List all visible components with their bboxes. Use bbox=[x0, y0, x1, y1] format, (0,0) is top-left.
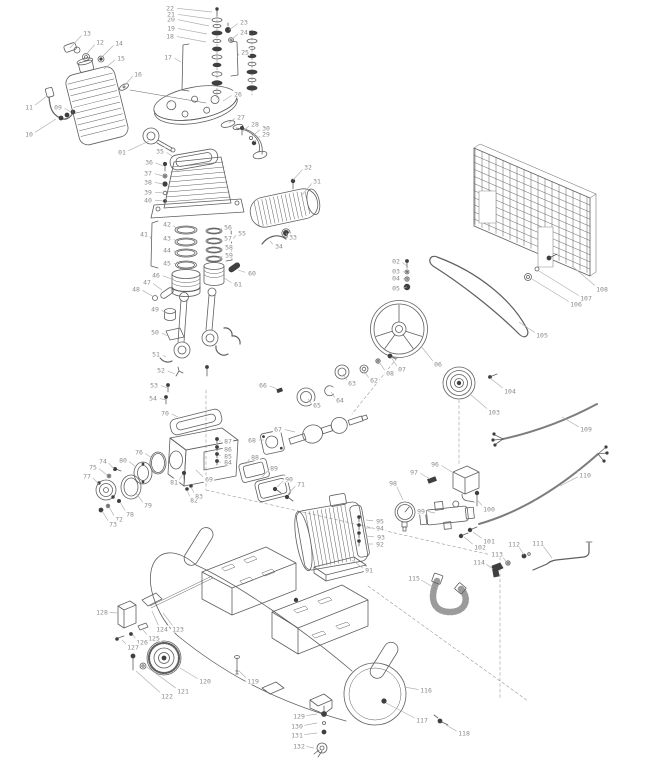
leader-line bbox=[93, 478, 99, 484]
part-number-label: 11 bbox=[25, 103, 33, 111]
leader-line bbox=[153, 284, 162, 290]
part-number-label: 81 bbox=[170, 478, 178, 486]
part-number-label: 93 bbox=[377, 533, 385, 541]
leader-line bbox=[441, 465, 452, 472]
leader-line bbox=[120, 502, 126, 511]
leader-line bbox=[178, 14, 211, 19]
part-number-label: 54 bbox=[149, 394, 157, 402]
part-number-label: 01 bbox=[118, 148, 126, 156]
part-number-label: 99 bbox=[417, 507, 425, 515]
part-number-label: 17 bbox=[164, 53, 172, 61]
part-number-label: 48 bbox=[132, 285, 140, 293]
part-number-label: 83 bbox=[195, 492, 203, 500]
part-number-label: 118 bbox=[458, 729, 470, 737]
part-number-label: 60 bbox=[248, 269, 256, 277]
leader-line bbox=[293, 169, 303, 180]
leader-line bbox=[155, 174, 163, 176]
part-number-label: 66 bbox=[259, 381, 267, 389]
part-number-label: 121 bbox=[177, 687, 189, 695]
part-number-label: 35 bbox=[156, 147, 164, 155]
leader-line bbox=[35, 119, 56, 132]
leader-line bbox=[136, 493, 143, 503]
leader-line bbox=[196, 470, 203, 477]
leader-line bbox=[270, 241, 273, 244]
leader-line bbox=[160, 399, 166, 400]
leader-line bbox=[366, 536, 374, 537]
leader-line bbox=[219, 455, 221, 456]
part-number-label: 97 bbox=[410, 468, 418, 476]
leader-line bbox=[379, 362, 385, 371]
part-number-label: 57 bbox=[224, 234, 232, 242]
part-number-label: 07 bbox=[398, 365, 406, 373]
leader-line bbox=[251, 130, 260, 137]
part-number-label: 70 bbox=[161, 409, 169, 417]
part-number-label: 41 bbox=[140, 230, 148, 238]
tank-handle-front bbox=[182, 525, 216, 568]
part-number-label: 102 bbox=[474, 543, 486, 551]
leader-line bbox=[85, 44, 95, 56]
part-number-label: 64 bbox=[336, 396, 344, 404]
base-gasket-drawing bbox=[169, 408, 223, 436]
part-number-label: 67 bbox=[274, 425, 282, 433]
part-number-label: 58 bbox=[225, 243, 233, 251]
part-number-label: 120 bbox=[199, 677, 211, 685]
part-number-label: 31 bbox=[313, 177, 321, 185]
part-number-label: 19 bbox=[167, 24, 175, 32]
leader-line bbox=[539, 271, 580, 296]
leader-line bbox=[420, 579, 433, 587]
leader-line bbox=[136, 671, 162, 694]
leader-line bbox=[366, 520, 373, 521]
part-number-label: 85 bbox=[224, 452, 232, 460]
callout-leader-lines bbox=[35, 8, 596, 748]
leader-line bbox=[99, 469, 107, 475]
part-number-label: 115 bbox=[408, 574, 420, 582]
leader-line bbox=[175, 58, 181, 62]
part-number-label: 123 bbox=[172, 625, 184, 633]
leader-line bbox=[155, 192, 163, 193]
part-number-label: 76 bbox=[135, 448, 143, 456]
part-number-label: 62 bbox=[370, 376, 378, 384]
leader-line bbox=[446, 725, 458, 732]
part-number-label: 75 bbox=[89, 463, 97, 471]
leader-line bbox=[490, 378, 504, 389]
part-number-label: 49 bbox=[151, 305, 159, 313]
leader-line bbox=[572, 266, 596, 287]
leader-line bbox=[304, 723, 317, 725]
part-number-label: 114 bbox=[473, 558, 485, 566]
part-number-label: 09 bbox=[54, 103, 62, 111]
part-number-label: 107 bbox=[580, 294, 592, 302]
part-number-label: 122 bbox=[161, 692, 173, 700]
part-number-label: 25 bbox=[241, 48, 249, 56]
leader-line bbox=[404, 687, 419, 690]
leader-line bbox=[145, 453, 152, 458]
part-number-label: 69 bbox=[205, 475, 213, 483]
leader-line bbox=[470, 394, 488, 410]
part-number-label: 02 bbox=[392, 257, 400, 265]
power-wires-drawing bbox=[479, 404, 608, 524]
part-number-label: 50 bbox=[151, 328, 159, 336]
part-number-label: 95 bbox=[376, 517, 384, 525]
leader-line bbox=[562, 417, 580, 427]
part-number-label: 116 bbox=[420, 686, 432, 694]
shroud-drawing bbox=[248, 179, 323, 244]
part-number-label: 110 bbox=[579, 471, 591, 479]
part-number-label: 46 bbox=[152, 271, 160, 279]
part-number-label: 65 bbox=[313, 401, 321, 409]
part-number-label: 05 bbox=[392, 284, 400, 292]
part-number-label: 111 bbox=[532, 539, 544, 547]
leader-line bbox=[155, 182, 163, 184]
part-number-label: 30 bbox=[262, 124, 270, 132]
part-number-label: 105 bbox=[536, 331, 548, 339]
tank-drawing bbox=[116, 525, 448, 757]
leader-line bbox=[150, 236, 151, 239]
part-number-label: 103 bbox=[488, 408, 500, 416]
part-number-label: 10 bbox=[25, 130, 33, 138]
part-number-label: 90 bbox=[285, 475, 293, 483]
part-number-label: 42 bbox=[163, 220, 171, 228]
part-number-label: 44 bbox=[163, 246, 171, 254]
part-number-label: 132 bbox=[293, 742, 305, 750]
leader-line bbox=[224, 278, 232, 283]
part-number-label: 127 bbox=[127, 643, 139, 651]
tank-handle-rear bbox=[368, 640, 401, 681]
part-number-label: 39 bbox=[144, 188, 152, 196]
part-number-label: 77 bbox=[83, 472, 91, 480]
leader-line bbox=[543, 546, 552, 558]
leader-line bbox=[129, 462, 136, 467]
leader-line bbox=[65, 108, 71, 112]
leader-line bbox=[102, 511, 108, 521]
leader-line bbox=[162, 310, 166, 313]
leader-line bbox=[179, 474, 183, 480]
leader-line bbox=[163, 355, 166, 357]
part-number-label: 16 bbox=[134, 70, 142, 78]
leader-line bbox=[109, 507, 115, 516]
leader-line bbox=[233, 235, 236, 239]
part-number-label: 15 bbox=[117, 54, 125, 62]
part-number-label: 55 bbox=[238, 229, 246, 237]
part-number-label: 104 bbox=[504, 387, 516, 395]
leader-line bbox=[331, 392, 335, 398]
part-number-label: 78 bbox=[126, 510, 134, 518]
part-number-label: 37 bbox=[144, 169, 152, 177]
leader-line bbox=[428, 511, 435, 513]
part-number-label: 56 bbox=[224, 223, 232, 231]
part-number-label: 125 bbox=[148, 634, 160, 642]
part-number-label: 27 bbox=[237, 113, 245, 121]
part-number-label: 91 bbox=[365, 566, 373, 574]
part-number-label: 47 bbox=[143, 278, 151, 286]
part-number-label: 22 bbox=[166, 4, 174, 12]
leader-line bbox=[402, 262, 407, 266]
pressure-controls-drawing bbox=[395, 466, 479, 538]
leader-line bbox=[178, 29, 207, 34]
part-number-label: 88 bbox=[251, 453, 259, 461]
part-number-label: 124 bbox=[156, 625, 168, 633]
part-number-label: 129 bbox=[293, 712, 305, 720]
leader-line bbox=[101, 45, 114, 58]
part-number-label: 131 bbox=[291, 731, 303, 739]
parts-diagram-canvas: 0102030405060708091011121314151617181920… bbox=[0, 0, 646, 768]
part-number-label: 79 bbox=[144, 501, 152, 509]
part-number-label: 96 bbox=[431, 460, 439, 468]
part-number-label: 63 bbox=[348, 379, 356, 387]
part-number-label: 98 bbox=[389, 479, 397, 487]
part-number-label: 100 bbox=[483, 505, 495, 513]
leader-line bbox=[155, 200, 163, 201]
leader-line bbox=[473, 532, 483, 539]
leader-line bbox=[152, 611, 159, 626]
leader-line bbox=[238, 270, 245, 272]
aftercooler-drawing bbox=[61, 42, 206, 147]
leader-line bbox=[229, 24, 238, 30]
leader-line bbox=[166, 152, 172, 156]
leader-line bbox=[128, 141, 149, 151]
part-number-label: 32 bbox=[304, 163, 312, 171]
part-number-label: 38 bbox=[144, 178, 152, 186]
leader-line bbox=[173, 225, 176, 228]
part-number-label: 130 bbox=[291, 722, 303, 730]
leader-line bbox=[177, 37, 206, 42]
part-number-label: 109 bbox=[580, 425, 592, 433]
leader-line bbox=[223, 95, 232, 101]
leader-line bbox=[172, 414, 178, 417]
leader-line bbox=[177, 8, 212, 12]
leader-line bbox=[270, 386, 277, 389]
part-number-label: 28 bbox=[251, 120, 259, 128]
part-number-label: 14 bbox=[115, 39, 123, 47]
leader-line bbox=[168, 371, 175, 374]
part-number-label: 43 bbox=[163, 234, 171, 242]
leader-line bbox=[174, 239, 176, 241]
pipes-hose-drawing bbox=[432, 542, 592, 612]
part-number-label: 40 bbox=[144, 196, 152, 204]
part-number-label: 36 bbox=[145, 158, 153, 166]
piston-rings-left-drawing bbox=[151, 221, 197, 269]
alignment-dashed-lines bbox=[206, 358, 528, 701]
leader-line bbox=[219, 448, 221, 449]
part-number-label: 86 bbox=[224, 445, 232, 453]
connecting-rods-drawing bbox=[159, 288, 240, 404]
part-number-label: 06 bbox=[434, 360, 442, 368]
part-number-label: 128 bbox=[96, 608, 108, 616]
leader-line bbox=[178, 20, 209, 26]
leader-line bbox=[277, 481, 283, 487]
part-number-label: 74 bbox=[99, 457, 107, 465]
part-number-label: 23 bbox=[240, 18, 248, 26]
leader-line bbox=[301, 183, 312, 196]
intake-manifold-drawing bbox=[220, 119, 267, 160]
part-number-label: 73 bbox=[109, 520, 117, 528]
part-number-label: 94 bbox=[376, 524, 384, 532]
leader-line bbox=[231, 34, 238, 40]
leader-line bbox=[109, 463, 114, 469]
part-number-label: 13 bbox=[83, 29, 91, 37]
part-number-label: 68 bbox=[248, 436, 256, 444]
part-number-label: 51 bbox=[152, 350, 160, 358]
cylinder-head-drawing bbox=[151, 80, 240, 130]
part-number-label: 45 bbox=[163, 259, 171, 267]
leader-line bbox=[156, 163, 163, 166]
part-number-label: 18 bbox=[166, 32, 174, 40]
part-number-label: 52 bbox=[157, 366, 165, 374]
leader-line bbox=[386, 703, 416, 719]
part-number-label: 33 bbox=[289, 233, 297, 241]
part-number-label: 61 bbox=[234, 280, 242, 288]
part-number-label: 113 bbox=[491, 550, 503, 558]
leader-line bbox=[109, 612, 117, 613]
part-number-label: 117 bbox=[416, 716, 428, 724]
leader-line bbox=[163, 276, 172, 279]
part-number-label: 92 bbox=[376, 540, 384, 548]
leader-line bbox=[397, 486, 403, 500]
leader-line bbox=[532, 279, 570, 302]
part-number-label: 24 bbox=[240, 28, 248, 36]
part-number-label: 34 bbox=[275, 242, 283, 250]
leader-line bbox=[421, 346, 433, 361]
part-number-label: 108 bbox=[596, 285, 608, 293]
part-number-label: 59 bbox=[225, 251, 233, 259]
part-number-label: 87 bbox=[224, 437, 232, 445]
part-number-label: 12 bbox=[96, 38, 104, 46]
exploded-view-artwork: 0102030405060708091011121314151617181920… bbox=[0, 0, 646, 768]
leader-line bbox=[142, 290, 154, 297]
leader-line bbox=[304, 733, 317, 735]
motor-drawing bbox=[290, 491, 371, 581]
leader-line bbox=[306, 714, 317, 716]
leader-line bbox=[306, 746, 314, 748]
part-number-label: 80 bbox=[119, 456, 127, 464]
part-number-label: 04 bbox=[392, 274, 400, 282]
part-number-label: 71 bbox=[297, 480, 305, 488]
part-number-label: 26 bbox=[234, 90, 242, 98]
part-number-label: 53 bbox=[150, 381, 158, 389]
leader-line bbox=[464, 537, 474, 545]
part-number-label: 89 bbox=[270, 464, 278, 472]
part-number-label: 08 bbox=[386, 369, 394, 377]
leader-line bbox=[35, 96, 47, 105]
part-number-label: 112 bbox=[508, 540, 520, 548]
leader-line bbox=[420, 473, 430, 479]
belt-guard-grid-drawing bbox=[474, 144, 596, 281]
belt-drawing bbox=[430, 256, 528, 336]
leader-line bbox=[174, 263, 176, 264]
part-number-label: 119 bbox=[247, 677, 259, 685]
leader-line bbox=[180, 668, 199, 679]
leader-line bbox=[285, 430, 295, 432]
